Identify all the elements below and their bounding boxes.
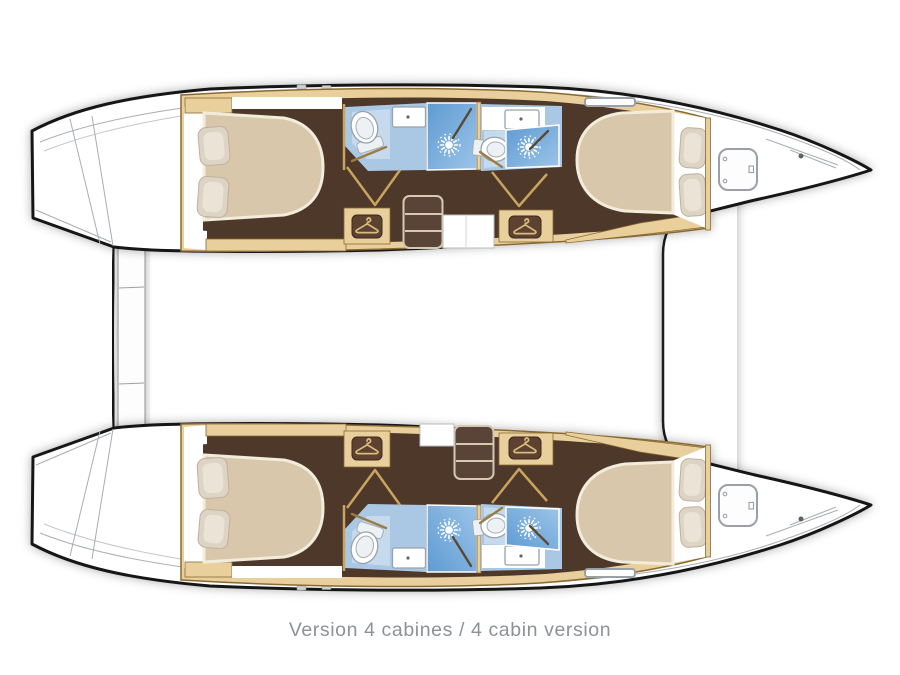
catamaran-floor-plan — [0, 0, 900, 675]
stern-centerline — [113, 247, 115, 428]
catamaran-floor-plan-page: Version 4 cabines / 4 cabin version — [0, 0, 900, 675]
hull-starboard — [32, 424, 871, 591]
caption: Version 4 cabines / 4 cabin version — [0, 619, 900, 642]
bridgedeck-bow-outline — [663, 199, 737, 476]
